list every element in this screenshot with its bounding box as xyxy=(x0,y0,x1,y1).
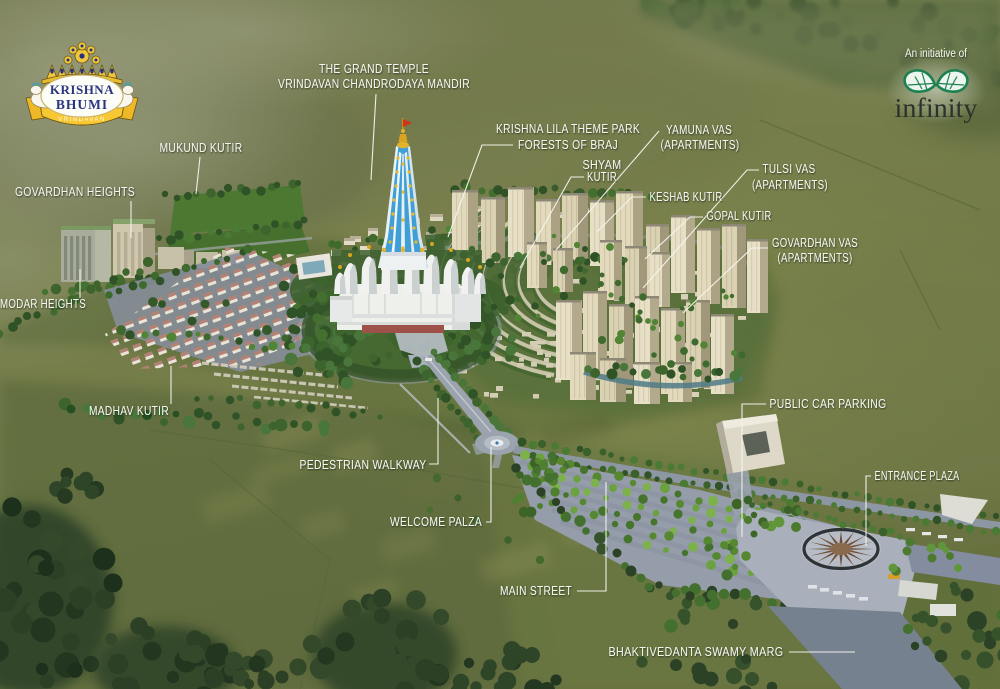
svg-text:KRISHNA LILA THEME PARK: KRISHNA LILA THEME PARK xyxy=(496,122,640,136)
svg-text:(APARTMENTS): (APARTMENTS) xyxy=(752,178,828,192)
svg-text:WELCOME PALZA: WELCOME PALZA xyxy=(390,515,482,529)
svg-text:ENTRANCE PLAZA: ENTRANCE PLAZA xyxy=(875,469,960,483)
svg-text:VRINDAVAN CHANDRODAYA MANDIR: VRINDAVAN CHANDRODAYA MANDIR xyxy=(278,77,470,91)
svg-text:PUBLIC CAR PARKING: PUBLIC CAR PARKING xyxy=(770,397,887,411)
svg-text:TULSI VAS: TULSI VAS xyxy=(763,162,816,176)
svg-text:GOVARDHAN VAS: GOVARDHAN VAS xyxy=(772,236,858,250)
svg-text:FORESTS OF BRAJ: FORESTS OF BRAJ xyxy=(518,138,618,152)
svg-text:(APARTMENTS): (APARTMENTS) xyxy=(778,251,853,265)
svg-text:GOVARDHAN HEIGHTS: GOVARDHAN HEIGHTS xyxy=(15,185,135,199)
svg-text:BHUMI: BHUMI xyxy=(56,97,108,112)
svg-text:infinity: infinity xyxy=(895,93,979,123)
svg-text:KESHAB KUTIR: KESHAB KUTIR xyxy=(650,190,723,204)
svg-text:THE GRAND TEMPLE: THE GRAND TEMPLE xyxy=(319,62,429,76)
svg-text:GOPAL KUTIR: GOPAL KUTIR xyxy=(707,209,772,223)
svg-text:MUKUND KUTIR: MUKUND KUTIR xyxy=(160,141,243,155)
svg-text:BHAKTIVEDANTA SWAMY MARG: BHAKTIVEDANTA SWAMY MARG xyxy=(609,645,784,659)
svg-text:An initiative of: An initiative of xyxy=(905,48,968,60)
svg-text:MODAR HEIGHTS: MODAR HEIGHTS xyxy=(0,297,86,311)
svg-text:PEDESTRIAN WALKWAY: PEDESTRIAN WALKWAY xyxy=(300,458,427,472)
svg-text:MADHAV KUTIR: MADHAV KUTIR xyxy=(89,404,169,418)
svg-text:VRINDAVAN: VRINDAVAN xyxy=(58,117,106,123)
svg-text:KUTIR: KUTIR xyxy=(587,170,617,184)
svg-text:(APARTMENTS): (APARTMENTS) xyxy=(661,138,740,152)
svg-text:YAMUNA VAS: YAMUNA VAS xyxy=(666,123,732,137)
svg-text:MAIN STREET: MAIN STREET xyxy=(500,584,572,598)
svg-text:KRISHNA: KRISHNA xyxy=(50,82,114,97)
